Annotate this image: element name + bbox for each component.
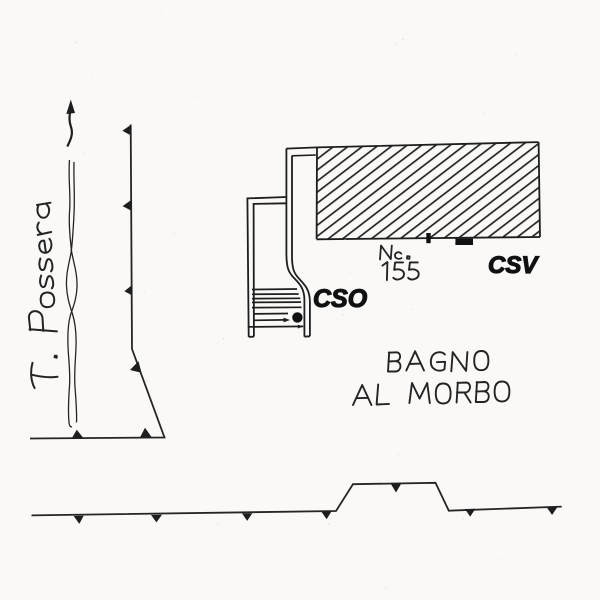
svg-text:CSV: CSV <box>488 252 539 279</box>
svg-text:CSO: CSO <box>313 285 368 313</box>
